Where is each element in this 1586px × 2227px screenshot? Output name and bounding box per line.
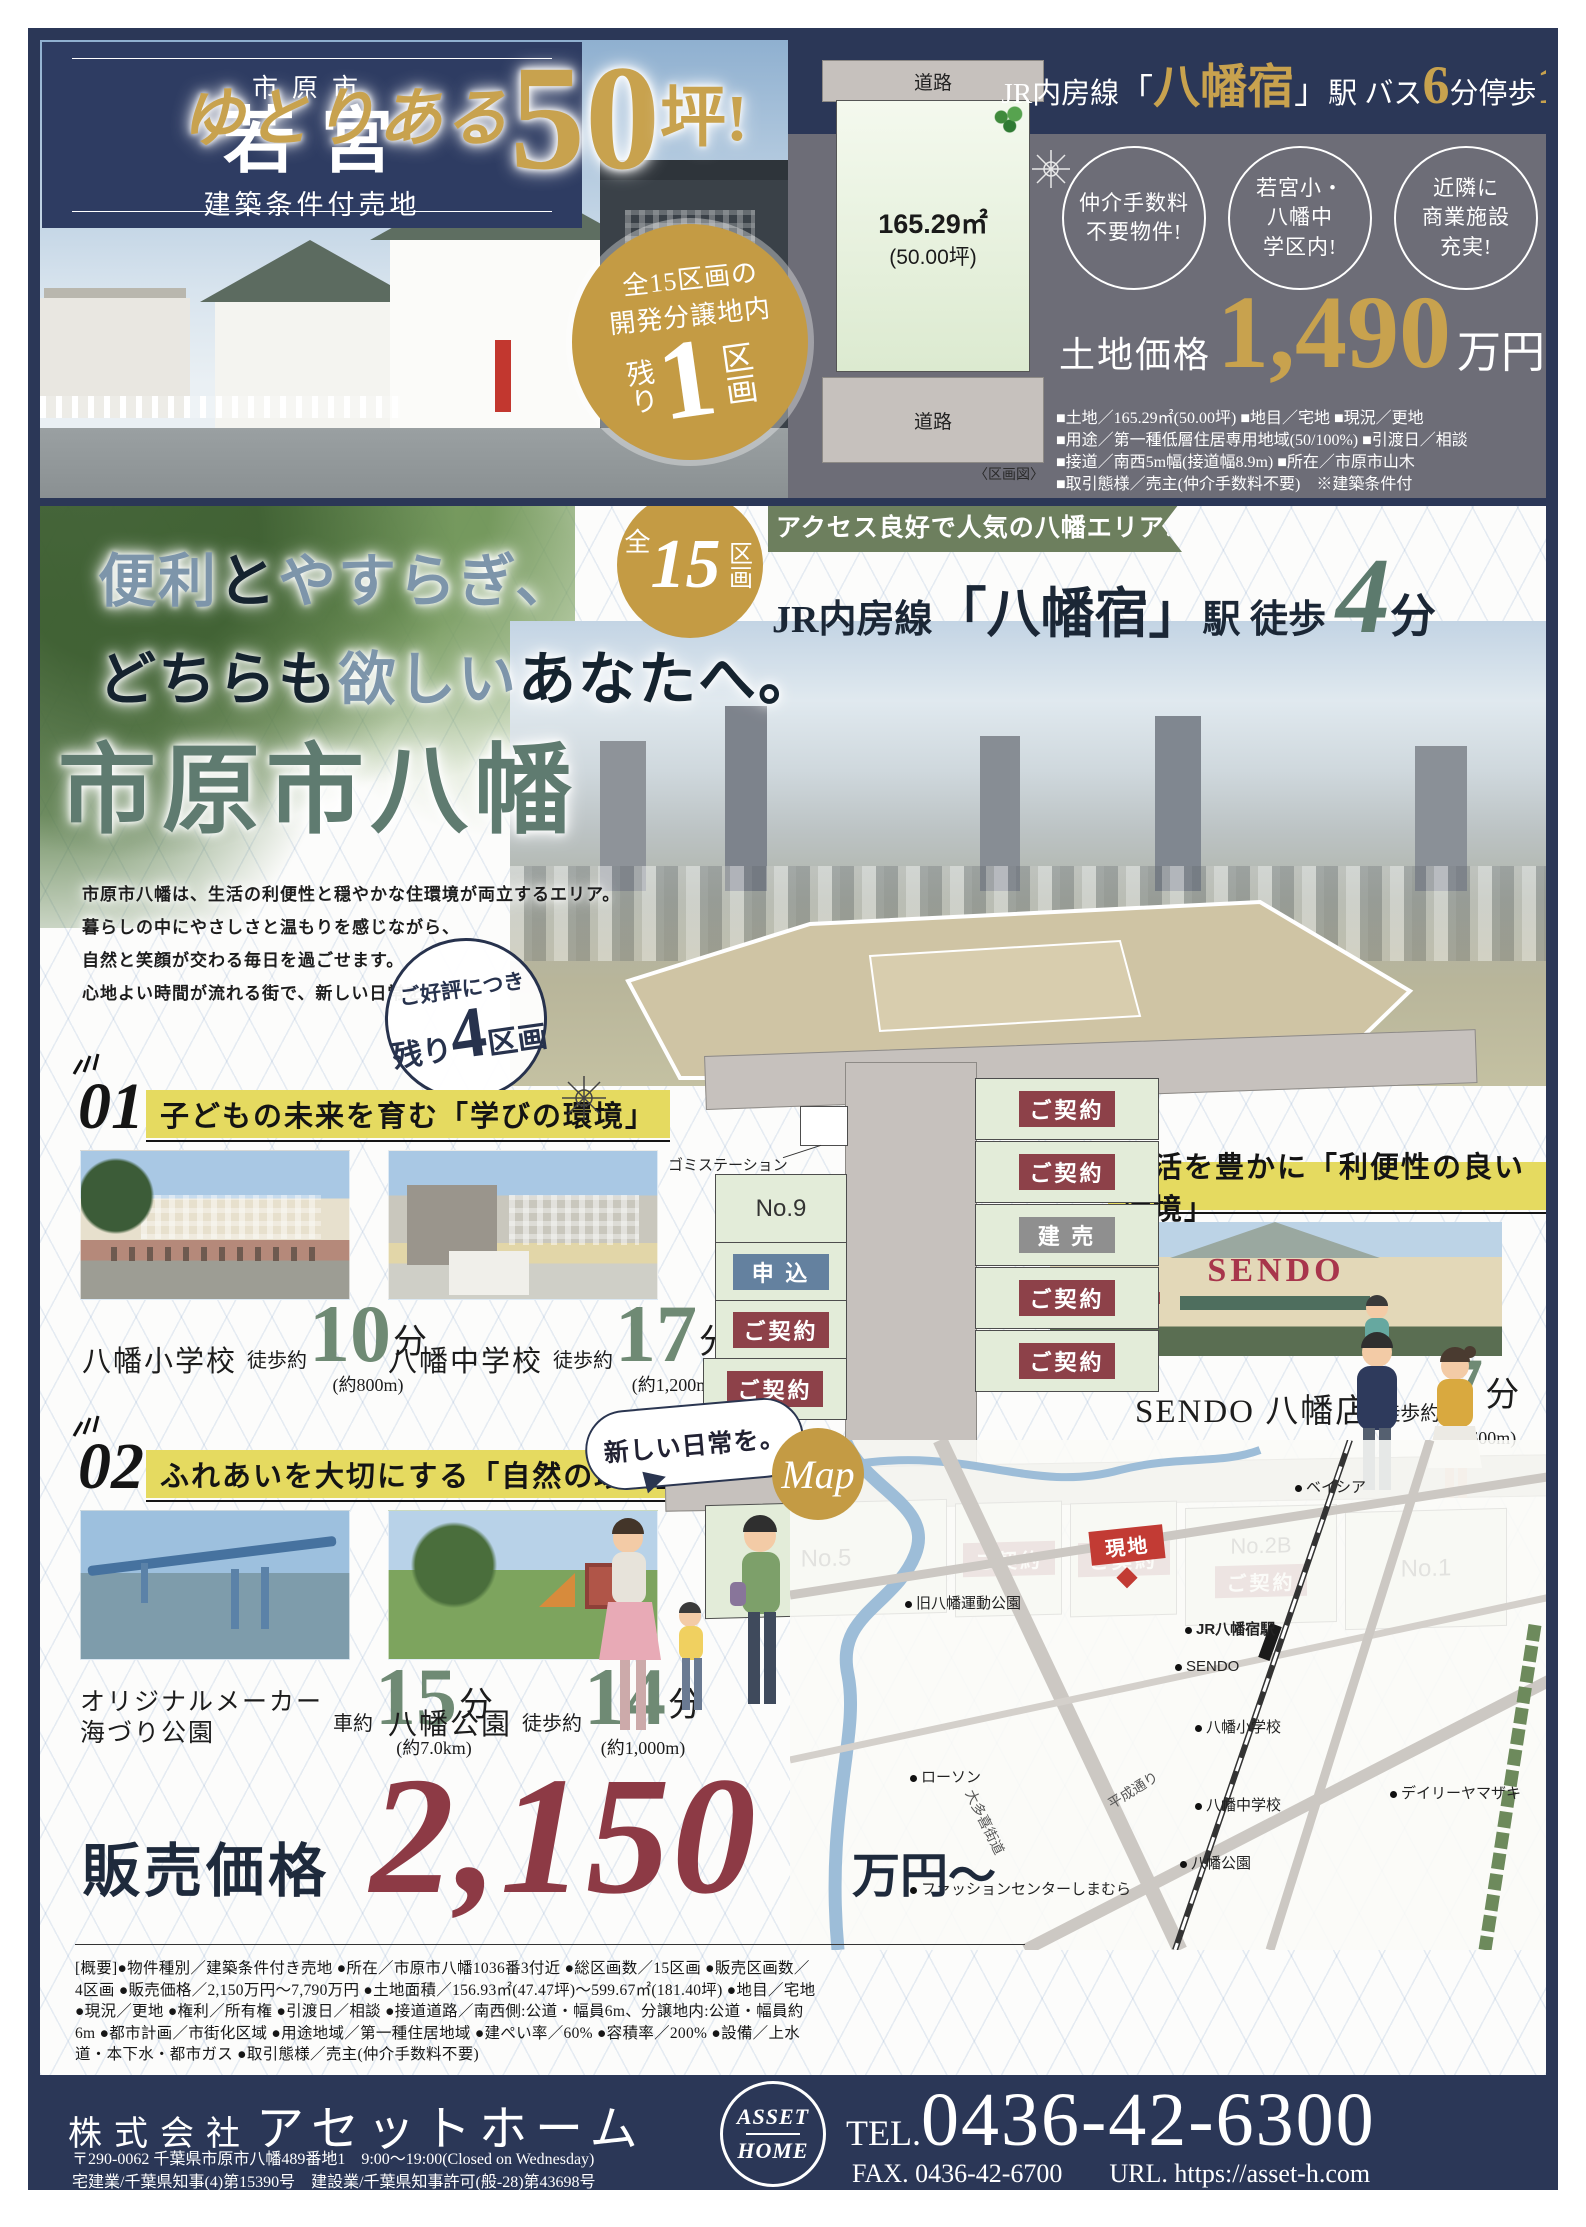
rail-mid2: 分停歩 [1449, 70, 1536, 112]
headline-script: ゆとりある [180, 83, 510, 154]
tower [1155, 716, 1201, 891]
feature-circles: 仲介手数料 不要物件! 若宮小・ 八幡中 学区内! 近隣に 商業施設 充実! [1062, 146, 1538, 290]
feature-line: 不要物件! [1086, 218, 1182, 247]
lot-sold: ご契約 [975, 1267, 1159, 1329]
flyer-page: 市原市 若宮 建築条件付売地 ゆとりある50坪! 全15区画の 開発分譲地内 残… [0, 0, 1586, 2227]
main-section: 便利とやすらぎ、 どちらも欲しいあなたへ。 全 15 区画 アクセス良好で人気の… [40, 506, 1546, 2075]
pier-bridge [87, 1536, 336, 1576]
plot-tsubo: (50.00坪) [889, 241, 977, 271]
remain-suf: 区画 [484, 1011, 550, 1063]
lotmap-road-vertical [845, 1062, 977, 1472]
remain-num: 4 [446, 1000, 490, 1066]
poi-mode: 徒歩約 [247, 1344, 307, 1373]
paragraph-line: 暮らしの中にやさしさと温もりを感じながら、 [82, 911, 620, 944]
rail-num2: 1 [1536, 54, 1546, 116]
flyer-frame: 市原市 若宮 建築条件付売地 ゆとりある50坪! 全15区画の 開発分譲地内 残… [28, 28, 1558, 2190]
rail-num1: 6 [1422, 54, 1449, 116]
section3-title: 生活を豊かに「利便性の良い環境」 [1108, 1162, 1546, 1210]
photo-fishing-park [80, 1510, 350, 1660]
poi-caption-junior-high: 八幡中学校 徒歩約 17分(約1,200m) [388, 1301, 733, 1397]
site-marker-text: 現地 [1104, 1528, 1151, 1561]
rail-pre: JR内房線 [1002, 70, 1120, 112]
remaining-one-badge: 全15区画の 開発分譲地内 残り 1 区画 [572, 224, 808, 460]
price-unit: 万円 [1457, 316, 1545, 380]
catch-word: 欲しい [338, 647, 518, 712]
lots15-pre: 全 [624, 522, 650, 559]
headline: ゆとりある50坪! [180, 58, 748, 178]
map-poi: JR八幡宿駅 [1185, 1618, 1275, 1639]
lot-status-applied: 申 込 [733, 1254, 829, 1290]
lot-status-sold: ご契約 [1019, 1280, 1115, 1316]
access-ribbon: アクセス良好で人気の八幡エリア! [768, 506, 1182, 552]
photo-elementary-school [80, 1150, 350, 1300]
lots15-num: 15 [651, 530, 721, 600]
compass-icon [560, 1074, 608, 1122]
plot-caption: 〈区画図〉 [974, 464, 1044, 484]
fax-value: FAX. 0436-42-6700 [852, 2159, 1062, 2188]
rail-bracket-right: 」 [1294, 64, 1328, 113]
url-value: URL. https://asset-h.com [1109, 2159, 1370, 2188]
section3-underline [1108, 1212, 1546, 1214]
sale-price-unit: 万円〜 [852, 1836, 996, 1906]
photo-junior-high-school [388, 1150, 658, 1300]
sale-price-label: 販売価格 [82, 1824, 330, 1908]
walking-family-illustration [580, 1498, 815, 1753]
remain-pre: 残り [389, 1024, 455, 1076]
feature-line: 商業施設 [1422, 203, 1510, 232]
area-title: 市原市八幡 [58, 711, 578, 853]
lot-sold: ご契約 [975, 1078, 1159, 1140]
map-badge: Map [772, 1428, 864, 1520]
tel-label: TEL. [846, 2112, 921, 2154]
map-poi: 八幡小学校 [1195, 1716, 1281, 1737]
lot-sold: ご契約 [975, 1141, 1159, 1203]
rail-bracket-left: 「 [1119, 64, 1153, 113]
phone-number: TEL. 0436-42-6300 [846, 2077, 1376, 2164]
catch-word: やすらぎ、 [278, 549, 575, 614]
playground-slide [539, 1573, 575, 1607]
catch-word: と [218, 549, 278, 614]
trash-station-label: ゴミステーション [668, 1154, 788, 1175]
map-poi: 八幡公園 [1180, 1852, 1251, 1873]
property-overview: [概要]●物件種別／建築条件付き売地 ●所在／市原市八幡1036番3付近 ●総区… [75, 1958, 817, 2066]
company-address: 〒290-0062 千葉県市原市八幡489番地1 9:00〜19:00(Clos… [72, 2145, 594, 2169]
poi-name: 八幡小学校 [82, 1344, 237, 1380]
poi-mode: 車約 [333, 1707, 373, 1736]
catch-word: あなたへ。 [518, 647, 818, 712]
access-mid: 駅 徒歩 [1202, 588, 1326, 643]
speech-bubble-text: 新しい日常を。 [602, 1418, 786, 1470]
feature-line: 八幡中 [1267, 203, 1333, 232]
spec-line: ■取引態様／売主(仲介手数料不要) ※建築条件付 [1056, 474, 1468, 496]
spec-line: ■接道／南西5m幅(接道幅8.9m) ■所在／市原市山木 [1056, 452, 1468, 474]
logo-line2: HOME [737, 2138, 808, 2164]
catch-word: 便利 [98, 549, 218, 614]
tower [725, 706, 767, 891]
headline-unit: 坪! [660, 82, 748, 155]
rail-mid1: 駅 バス [1328, 70, 1422, 112]
spec-list: ■土地／165.29㎡(50.00坪) ■地目／宅地 ■現況／更地 ■用途／第一… [1056, 408, 1468, 496]
lots15-suf: 区画 [721, 541, 756, 589]
road-label: 道路 [914, 68, 952, 95]
feature-line: 若宮小・ [1256, 174, 1344, 203]
logo-divider [746, 2133, 800, 2135]
access-pre: JR内房線 [772, 588, 932, 643]
lot-built-for-sale: 建 売 [975, 1204, 1159, 1266]
land-price: 土地価格 1,490 万円 [1054, 286, 1546, 380]
poi-name: 八幡中学校 [388, 1344, 543, 1380]
lot-sold: ご契約 [715, 1300, 847, 1360]
logo-line1: ASSET [737, 2104, 809, 2130]
plot-road-bottom: 道路 [822, 377, 1044, 463]
road-label: 道路 [914, 407, 952, 434]
feature-circle-2: 若宮小・ 八幡中 学区内! [1228, 146, 1372, 290]
feature-line: 近隣に [1433, 174, 1499, 203]
lot-status-sold: ご契約 [1019, 1091, 1115, 1127]
price-label: 土地価格 [1059, 326, 1211, 378]
feature-circle-1: 仲介手数料 不要物件! [1062, 146, 1206, 290]
map-poi: ベイシア [1295, 1476, 1366, 1497]
tree-blob [399, 1515, 509, 1615]
map-poi: 八幡中学校 [1195, 1794, 1281, 1815]
tel-value: 0436-42-6300 [921, 2077, 1376, 2164]
section3-title-text: 生活を豊かに「利便性の良い環境」 [1122, 1144, 1532, 1228]
company-logo: ASSET HOME [720, 2081, 826, 2187]
feature-line: 仲介手数料 [1079, 189, 1189, 218]
section1-number: 01 [78, 1074, 144, 1140]
poi-mode: 徒歩約 [522, 1707, 582, 1736]
pier-pillar [141, 1563, 148, 1603]
tree-blob [80, 1151, 161, 1241]
paragraph-line: 市原市八幡は、生活の利便性と穏やかな住環境が両立するエリア。 [82, 878, 620, 911]
badge-remain-suf: 区画 [710, 338, 764, 408]
access-ribbon-text: アクセス良好で人気の八幡エリア! [776, 508, 1174, 544]
map-badge-text: Map [781, 1451, 854, 1498]
poi-name: オリジナルメーカー海づり公園 [80, 1687, 323, 1750]
spec-line: ■土地／165.29㎡(50.00坪) ■地目／宅地 ■現況／更地 [1056, 408, 1468, 430]
lot-applied: 申 込 [715, 1242, 847, 1302]
rail-station: 八幡宿 [1153, 48, 1294, 117]
poi-name-line: 海づり公園 [80, 1718, 323, 1749]
poi-caption-elementary: 八幡小学校 徒歩約 10分(約800m) [82, 1301, 427, 1397]
map-poi: 旧八幡運動公園 [905, 1592, 1021, 1613]
price-value: 1,490 [1217, 286, 1451, 380]
map-poi: SENDO [1175, 1658, 1239, 1675]
feature-circle-3: 近隣に 商業施設 充実! [1394, 146, 1538, 290]
lot-status-sold: ご契約 [1019, 1154, 1115, 1190]
plot-lot: 165.29㎡ (50.00坪) [836, 100, 1030, 372]
lot-status-built: 建 売 [1019, 1217, 1115, 1253]
school-windows [141, 1195, 321, 1239]
lot-trash-station [800, 1106, 848, 1146]
poi-name: 八幡公園 [388, 1707, 512, 1743]
top-section: 市原市 若宮 建築条件付売地 ゆとりある50坪! 全15区画の 開発分譲地内 残… [40, 40, 1546, 498]
headline-number: 50 [510, 40, 660, 201]
access-suf: 分 [1390, 580, 1436, 646]
section1-underline [146, 1140, 670, 1142]
map-poi: デイリーヤマザキ [1390, 1782, 1521, 1803]
feature-line: 学区内! [1263, 233, 1337, 262]
fax-url-line: FAX. 0436-42-6700 URL. https://asset-h.c… [852, 2159, 1370, 2189]
paragraph-line: 自然と笑顔が交わる毎日を過ごせます。 [82, 944, 620, 977]
lot-status-sold: ご契約 [1019, 1343, 1115, 1379]
poi-minutes: 17 [615, 1301, 697, 1367]
rail-access-line: JR内房線 「 八幡宿 」 駅 バス 6 分停歩 1 分 [1048, 48, 1546, 128]
location-category: 建築条件付売地 [42, 183, 582, 222]
trash-pointer-line [783, 1145, 821, 1158]
access-num: 4 [1336, 554, 1390, 640]
lot-status-sold: ご契約 [733, 1312, 829, 1348]
plot-area: 165.29㎡ [878, 202, 988, 241]
catch-word: どちらも [98, 647, 338, 712]
lot-no9: No.9 [715, 1174, 847, 1244]
poi-name-line: オリジナルメーカー [80, 1687, 323, 1718]
poi-mode: 徒歩約 [553, 1344, 613, 1373]
house-left-roof [200, 240, 420, 302]
plot-diagram: 道路 165.29㎡ (50.00坪) 道路 〈区画図〉 [822, 60, 1044, 470]
lot-number-label: No.9 [756, 1195, 807, 1223]
sale-price-value: 2,150 [370, 1752, 758, 1920]
feature-line: 充実! [1440, 233, 1492, 262]
map-poi: ローソン [910, 1766, 981, 1787]
access-line: JR内房線 「八幡宿」 駅 徒歩 4 分 [772, 554, 1546, 648]
access-station: 「八幡宿」 [932, 569, 1202, 648]
school-wall [449, 1251, 529, 1295]
pier-pillar [231, 1569, 239, 1629]
section2-number: 02 [78, 1434, 144, 1500]
spec-line: ■用途／第一種低層住居専用地域(50/100%) ■引渡日／相談 [1056, 430, 1468, 452]
fence [40, 396, 400, 418]
lot-sold: ご契約 [975, 1330, 1159, 1392]
pier-pillar [261, 1567, 269, 1629]
school-windows [509, 1195, 639, 1245]
company-license: 宅建業/千葉県知事(4)第15390号 建設業/千葉県知事許可(般-28)第43… [72, 2168, 596, 2192]
sale-flag [495, 340, 511, 412]
school-gate [111, 1247, 321, 1261]
poi-minutes: 10 [309, 1301, 391, 1367]
footer: 株式会社 アセットホーム 〒290-0062 千葉県市原市八幡489番地1 9:… [28, 2075, 1558, 2190]
sale-price-underline [75, 1944, 1025, 1945]
